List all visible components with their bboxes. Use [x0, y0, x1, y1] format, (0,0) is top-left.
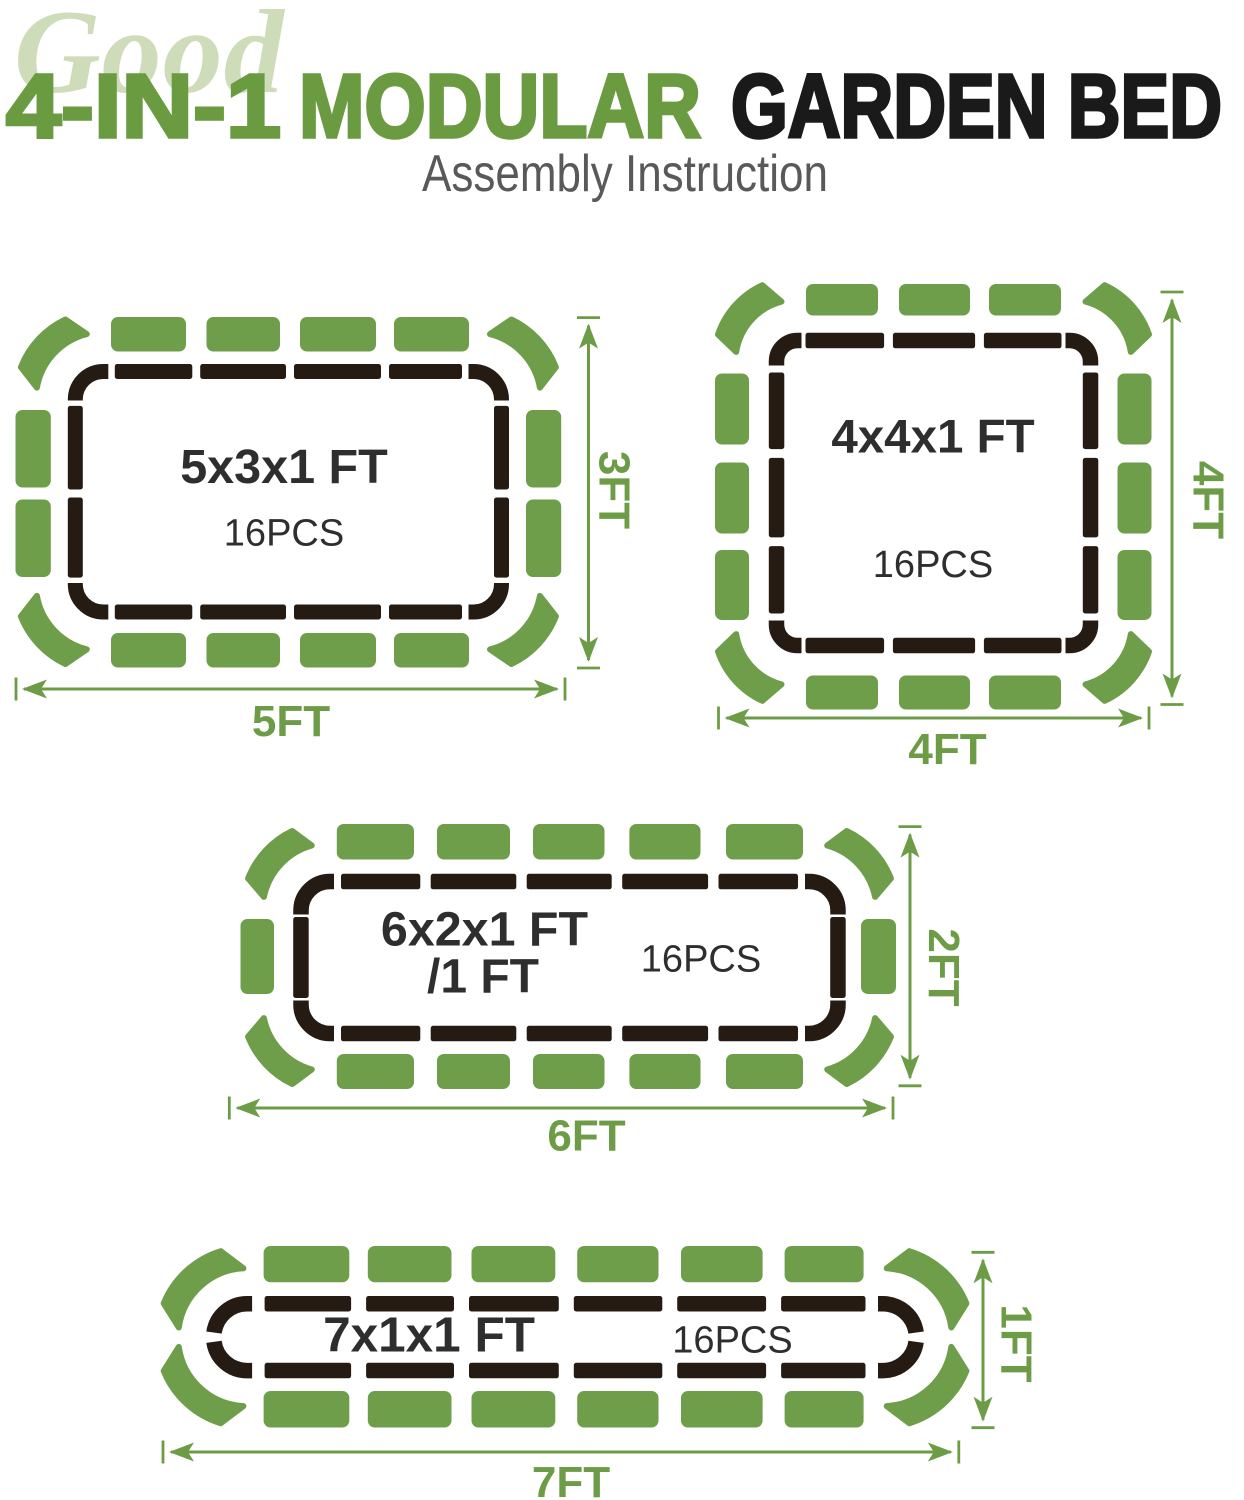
svg-text:7FT: 7FT: [532, 1458, 610, 1500]
svg-text:16PCS: 16PCS: [224, 513, 344, 555]
svg-text:4FT: 4FT: [1184, 461, 1233, 539]
svg-text:Assembly Instruction: Assembly Instruction: [422, 145, 828, 203]
svg-text:16PCS: 16PCS: [641, 939, 761, 981]
svg-text:7x1x1 FT: 7x1x1 FT: [323, 1308, 535, 1363]
svg-text:/1 FT: /1 FT: [427, 951, 539, 1004]
svg-text:5FT: 5FT: [252, 697, 330, 746]
svg-text:4FT: 4FT: [908, 725, 986, 774]
svg-text:5x3x1 FT: 5x3x1 FT: [180, 440, 388, 494]
svg-text:GARDEN BED: GARDEN BED: [731, 57, 1222, 157]
svg-text:MODULAR: MODULAR: [299, 57, 701, 157]
svg-text:4x4x1 FT: 4x4x1 FT: [831, 411, 1034, 464]
svg-text:16PCS: 16PCS: [672, 1320, 792, 1362]
svg-text:16PCS: 16PCS: [873, 544, 993, 586]
svg-text:1FT: 1FT: [992, 1304, 1041, 1382]
svg-text:2FT: 2FT: [919, 928, 968, 1006]
svg-text:3FT: 3FT: [590, 451, 639, 529]
svg-text:4-IN-1: 4-IN-1: [6, 57, 281, 157]
svg-text:6FT: 6FT: [547, 1112, 625, 1161]
svg-text:6x2x1 FT: 6x2x1 FT: [381, 903, 589, 957]
